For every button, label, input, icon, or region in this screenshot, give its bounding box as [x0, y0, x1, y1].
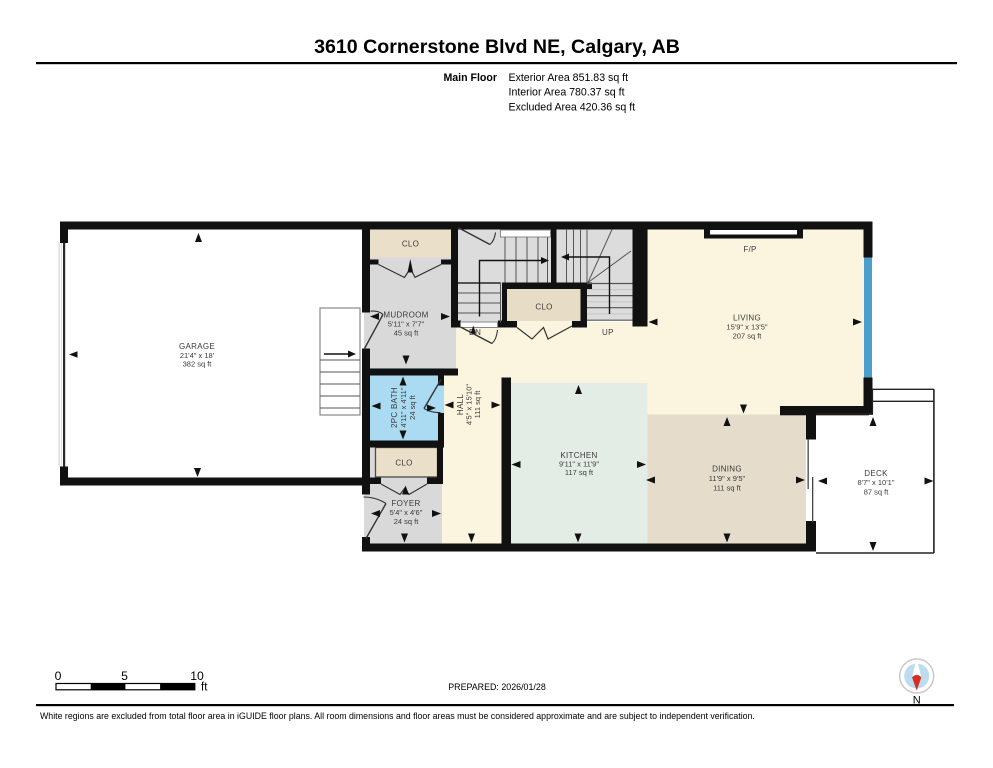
- svg-text:Exterior Area 851.83 sq ft: Exterior Area 851.83 sq ft: [509, 72, 629, 84]
- svg-text:15'9" x 13'5": 15'9" x 13'5": [726, 323, 767, 332]
- svg-text:Interior Area 780.37 sq ft: Interior Area 780.37 sq ft: [509, 87, 625, 99]
- svg-text:4'11" x 4'11": 4'11" x 4'11": [399, 387, 408, 427]
- svg-text:45 sq ft: 45 sq ft: [394, 329, 420, 338]
- svg-text:DINING: DINING: [712, 465, 742, 474]
- svg-text:MUDROOM: MUDROOM: [383, 311, 428, 320]
- svg-text:111 sq ft: 111 sq ft: [713, 484, 742, 493]
- svg-text:2PC BATH: 2PC BATH: [390, 387, 399, 428]
- svg-text:3610 Cornerstone Blvd NE, Calg: 3610 Cornerstone Blvd NE, Calgary, AB: [314, 36, 680, 58]
- svg-text:Main Floor: Main Floor: [443, 72, 497, 84]
- svg-text:PREPARED: 2026/01/28: PREPARED: 2026/01/28: [448, 682, 546, 692]
- svg-text:5: 5: [121, 669, 128, 683]
- svg-text:24 sq ft: 24 sq ft: [408, 394, 417, 420]
- svg-text:111 sq ft: 111 sq ft: [473, 390, 482, 419]
- svg-text:FOYER: FOYER: [391, 499, 420, 508]
- svg-text:8'7" x 10'1": 8'7" x 10'1": [858, 478, 895, 487]
- svg-text:GARAGE: GARAGE: [179, 342, 215, 351]
- svg-text:24 sq ft: 24 sq ft: [394, 517, 420, 526]
- svg-text:F/P: F/P: [743, 245, 756, 254]
- svg-text:ft: ft: [201, 682, 208, 694]
- svg-text:207 sq ft: 207 sq ft: [733, 332, 763, 341]
- svg-text:5'11" x 7'7": 5'11" x 7'7": [388, 320, 425, 329]
- svg-text:LIVING: LIVING: [733, 314, 761, 323]
- svg-text:Excluded Area 420.36 sq ft: Excluded Area 420.36 sq ft: [509, 102, 636, 114]
- svg-text:White regions are excluded fro: White regions are excluded from total fl…: [40, 711, 755, 721]
- svg-text:0: 0: [55, 669, 62, 683]
- svg-text:87 sq ft: 87 sq ft: [864, 488, 890, 497]
- svg-text:117 sq ft: 117 sq ft: [565, 468, 594, 477]
- svg-text:382 sq ft: 382 sq ft: [183, 360, 213, 369]
- svg-text:CLO: CLO: [395, 459, 412, 468]
- svg-text:DECK: DECK: [864, 469, 888, 478]
- svg-text:11'9" x 9'5": 11'9" x 9'5": [709, 474, 746, 483]
- svg-text:5'4" x 4'6": 5'4" x 4'6": [390, 508, 423, 517]
- svg-text:CLO: CLO: [535, 303, 552, 312]
- svg-text:UP: UP: [602, 328, 614, 337]
- svg-text:CLO: CLO: [402, 240, 419, 249]
